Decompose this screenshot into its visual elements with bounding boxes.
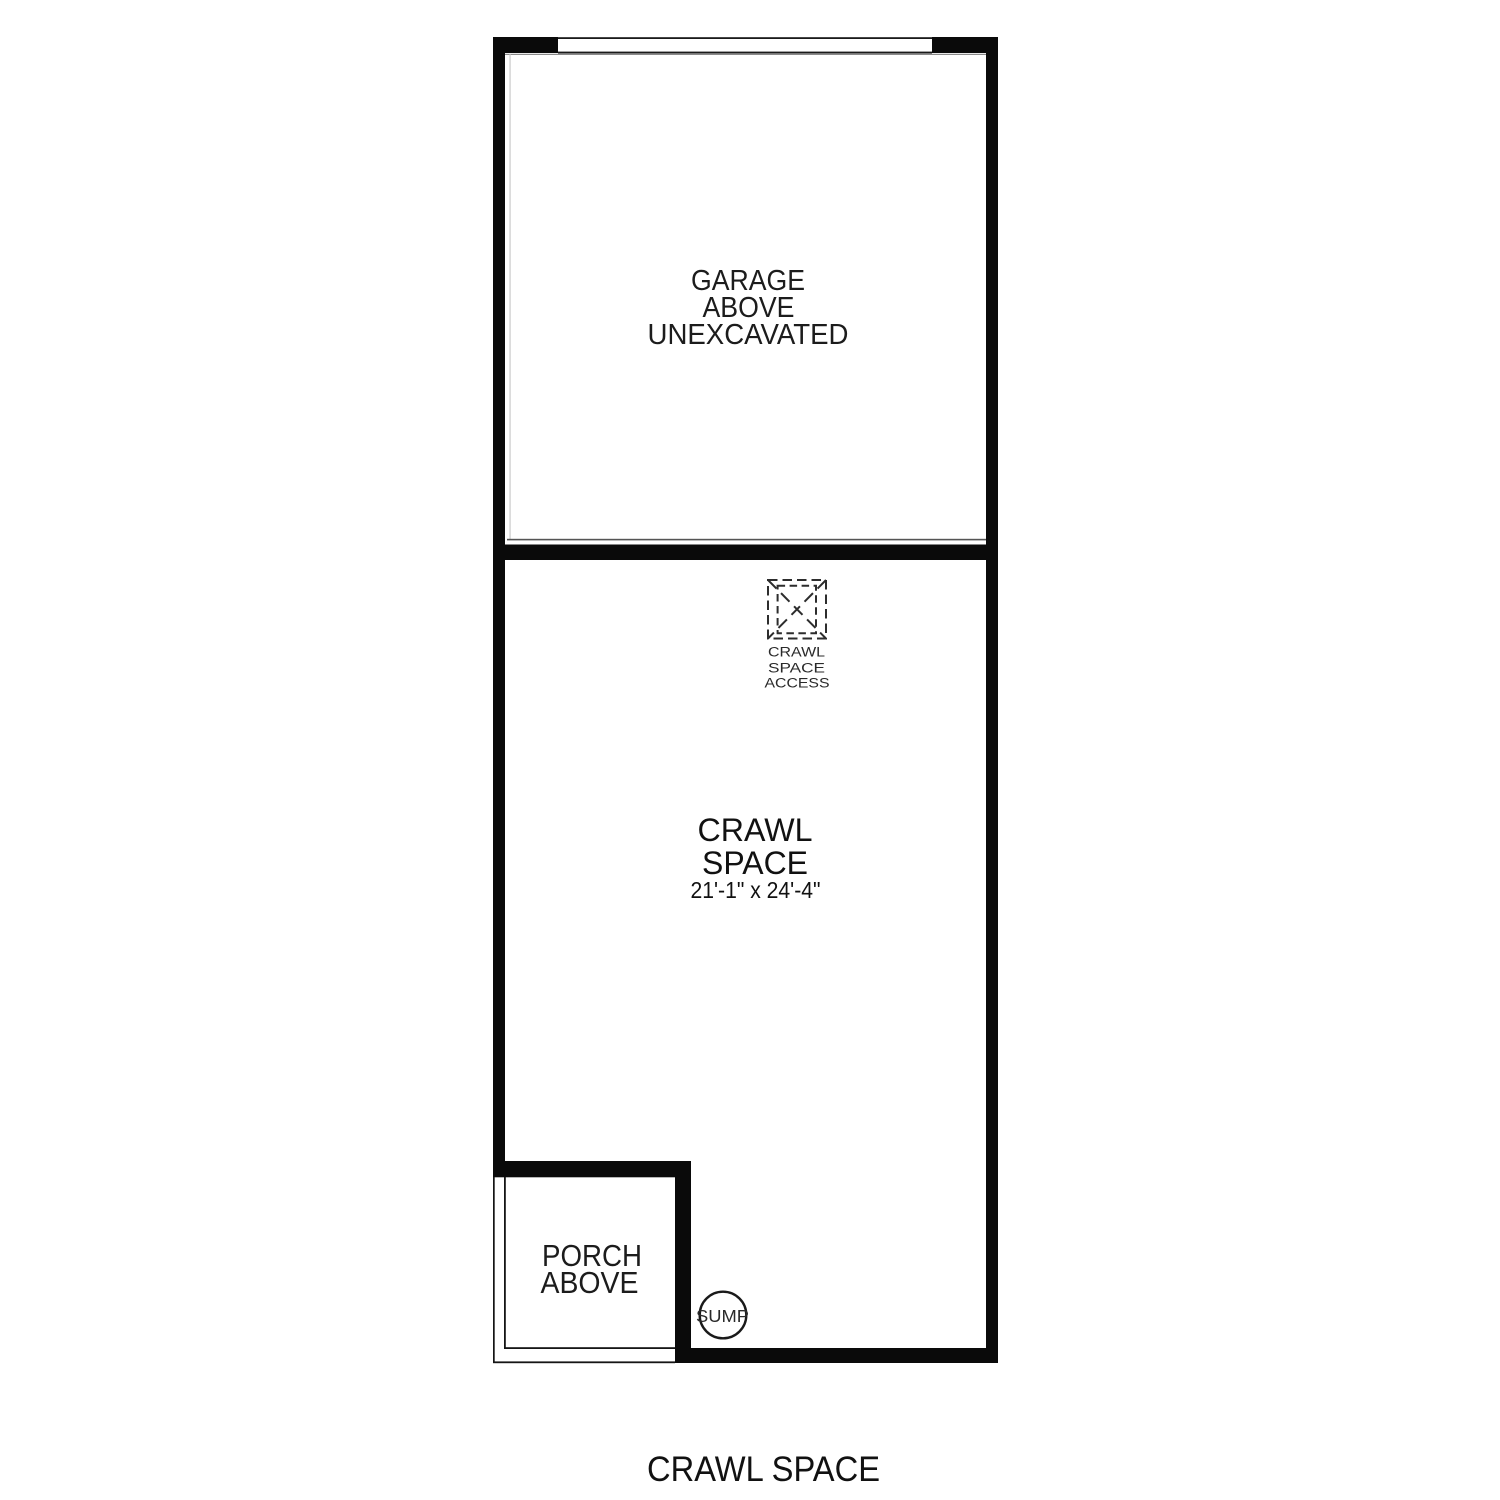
- svg-text:CRAWL: CRAWL: [698, 811, 813, 848]
- svg-text:SPACE: SPACE: [702, 844, 808, 881]
- svg-text:CRAWL: CRAWL: [768, 645, 825, 661]
- svg-text:UNEXCAVATED: UNEXCAVATED: [648, 319, 849, 351]
- svg-text:SUMP: SUMP: [696, 1306, 749, 1326]
- svg-text:CRAWL SPACE: CRAWL SPACE: [647, 1450, 880, 1489]
- svg-text:21'-1" x 24'-4": 21'-1" x 24'-4": [691, 877, 821, 903]
- svg-text:ACCESS: ACCESS: [765, 676, 830, 692]
- svg-text:SPACE: SPACE: [768, 661, 825, 677]
- svg-text:ABOVE: ABOVE: [541, 1266, 639, 1300]
